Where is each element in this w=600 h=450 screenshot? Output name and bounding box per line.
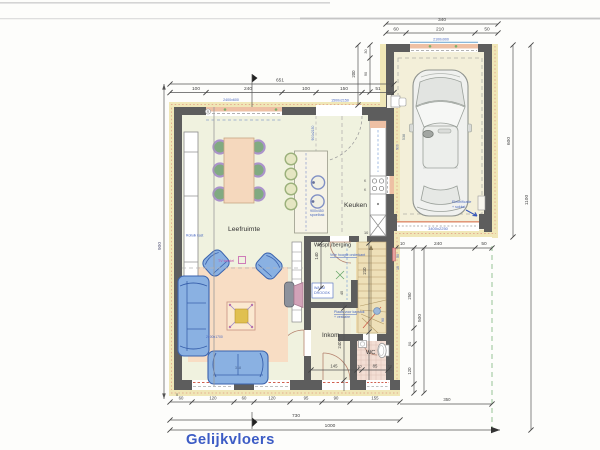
svg-text:10: 10 — [400, 241, 405, 246]
svg-text:538: 538 — [402, 134, 406, 140]
svg-text:Leefruimte: Leefruimte — [228, 226, 260, 233]
svg-text:340: 340 — [438, 17, 446, 23]
svg-text:+ sokkel: + sokkel — [452, 205, 465, 209]
svg-text:TV toestel: TV toestel — [218, 259, 234, 263]
svg-text:651: 651 — [276, 78, 284, 84]
svg-text:90: 90 — [334, 396, 339, 401]
svg-text:50: 50 — [481, 241, 487, 247]
svg-text:1000: 1000 — [325, 423, 336, 429]
svg-text:60: 60 — [393, 27, 399, 33]
svg-text:900: 900 — [396, 144, 400, 150]
svg-text:250: 250 — [407, 292, 412, 300]
svg-text:100: 100 — [302, 86, 310, 92]
svg-text:145: 145 — [330, 364, 338, 369]
svg-text:90: 90 — [364, 72, 368, 76]
svg-text:120: 120 — [268, 396, 276, 401]
svg-text:240: 240 — [337, 341, 342, 349]
svg-text:spoelbak: spoelbak — [310, 213, 325, 217]
svg-text:2100x900: 2100x900 — [433, 38, 449, 42]
svg-text:500: 500 — [417, 314, 423, 322]
svg-text:R: R — [207, 110, 210, 114]
svg-text:50: 50 — [396, 254, 400, 258]
svg-text:155: 155 — [371, 396, 379, 401]
svg-text:3400x2250: 3400x2250 — [428, 226, 449, 231]
svg-text:900x2150: 900x2150 — [311, 125, 315, 140]
svg-text:10: 10 — [357, 365, 361, 369]
svg-text:350: 350 — [443, 397, 451, 402]
svg-text:10: 10 — [396, 266, 400, 270]
svg-text:85: 85 — [373, 364, 378, 369]
svg-text:600: 600 — [506, 137, 512, 145]
svg-text:Rolluik kast: Rolluik kast — [186, 234, 203, 238]
svg-text:120: 120 — [209, 396, 217, 401]
svg-text:Keuken: Keuken — [344, 202, 367, 209]
svg-text:140: 140 — [314, 252, 319, 260]
svg-text:318: 318 — [235, 366, 241, 370]
svg-text:1100: 1100 — [524, 195, 530, 206]
svg-text:50: 50 — [407, 341, 412, 346]
svg-text:50: 50 — [484, 27, 490, 33]
svg-text:DROOGK: DROOGK — [314, 291, 331, 295]
svg-text:90: 90 — [381, 318, 385, 322]
svg-text:Elektrificatie: Elektrificatie — [452, 200, 471, 204]
svg-text:60: 60 — [179, 396, 184, 401]
svg-text:51: 51 — [375, 86, 381, 92]
svg-text:10: 10 — [388, 365, 392, 369]
svg-text:2400x1700: 2400x1700 — [206, 335, 223, 339]
svg-text:+ vestiaire: + vestiaire — [334, 315, 350, 319]
svg-text:730: 730 — [292, 413, 300, 419]
svg-text:120: 120 — [407, 367, 412, 375]
svg-text:150: 150 — [340, 86, 348, 92]
svg-text:210: 210 — [436, 27, 444, 33]
svg-text:240: 240 — [244, 86, 252, 92]
svg-text:Plaats voor kapstok: Plaats voor kapstok — [334, 310, 365, 314]
svg-text:240: 240 — [434, 241, 442, 247]
svg-text:2400x600: 2400x600 — [223, 98, 239, 102]
svg-text:WC: WC — [366, 350, 375, 356]
svg-text:95: 95 — [304, 396, 309, 401]
svg-text:Vrije hoogte onderkant: Vrije hoogte onderkant — [330, 253, 365, 257]
svg-text:Gelijkvloers: Gelijkvloers — [186, 432, 275, 448]
svg-text:30: 30 — [364, 49, 368, 53]
svg-text:900: 900 — [157, 242, 163, 250]
svg-text:100: 100 — [192, 86, 200, 92]
svg-text:1500x2150: 1500x2150 — [331, 99, 349, 103]
svg-text:200: 200 — [351, 70, 356, 78]
svg-text:Inkom: Inkom — [322, 332, 339, 339]
svg-text:Waspl./berging: Waspl./berging — [314, 243, 351, 249]
svg-text:60: 60 — [242, 396, 247, 401]
svg-text:45: 45 — [339, 290, 344, 295]
svg-text:210: 210 — [362, 267, 367, 275]
svg-text:10: 10 — [364, 231, 368, 235]
